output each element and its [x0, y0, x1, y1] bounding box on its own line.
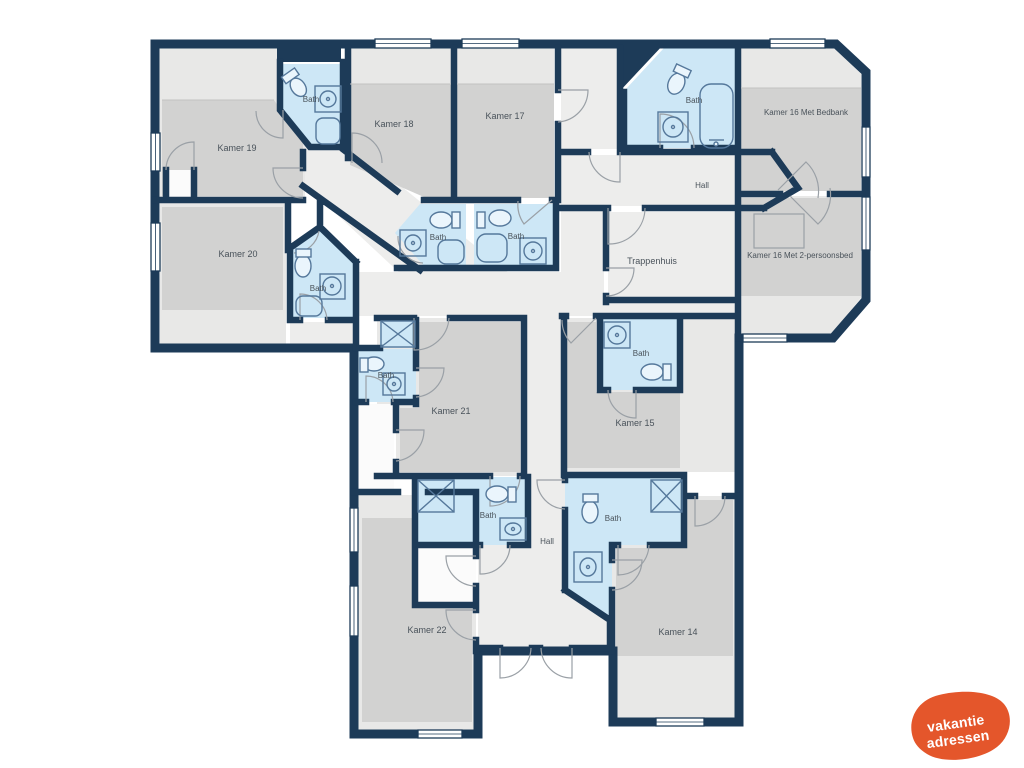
floorplan-svg: Kamer 19 Bath Kamer 18 Kamer 17 Bath Kam… — [0, 0, 1024, 768]
label-hall-lower: Hall — [540, 537, 554, 546]
window-icon — [656, 718, 704, 726]
label-kamer-15: Kamer 15 — [615, 418, 654, 428]
label-kamer-16-bedbank: Kamer 16 Met Bedbank — [764, 108, 849, 117]
window-icon — [743, 334, 787, 342]
toilet-icon — [641, 364, 671, 380]
hall-v1 — [561, 48, 619, 149]
room-kamer-17-area — [457, 84, 554, 198]
label-bath-lower-right: Bath — [605, 514, 621, 523]
toilet-icon — [295, 249, 311, 277]
toilet-icon — [360, 357, 384, 372]
label-trappenhuis: Trappenhuis — [627, 256, 677, 266]
window-icon — [151, 223, 160, 271]
label-kamer-21: Kamer 21 — [431, 406, 470, 416]
label-kamer-19: Kamer 19 — [217, 143, 256, 153]
room-kamer-16-2persoons-area — [741, 198, 861, 296]
label-kamer-17: Kamer 17 — [485, 111, 524, 121]
trappenhuis-floor — [608, 212, 736, 298]
window-icon — [418, 730, 462, 738]
toilet-icon — [582, 494, 598, 523]
label-kamer-20: Kamer 20 — [218, 249, 257, 259]
toilet-icon — [477, 210, 511, 228]
label-kamer-14: Kamer 14 — [658, 627, 697, 637]
toilet-icon — [486, 486, 516, 502]
room-kamer-16-bedbank-area — [741, 88, 861, 191]
label-kamer-22: Kamer 22 — [407, 625, 446, 635]
label-bath-lower-left: Bath — [480, 511, 496, 520]
vakantieadressen-logo: vakantie adressen — [911, 692, 1010, 760]
floorplan-page: Kamer 19 Bath Kamer 18 Kamer 17 Bath Kam… — [0, 0, 1024, 768]
label-bath-middle-left: Bath — [430, 233, 446, 242]
label-bath-19: Bath — [303, 95, 319, 104]
window-icon — [375, 39, 431, 48]
window-icon — [862, 127, 870, 177]
window-icon — [350, 508, 358, 552]
label-bath-15: Bath — [633, 349, 649, 358]
alcove-kamer-19 — [166, 170, 194, 197]
window-icon — [770, 39, 825, 48]
label-kamer-16-2persoons: Kamer 16 Met 2-persoonsbed — [747, 251, 853, 260]
toilet-icon — [430, 212, 460, 228]
label-hall-upper: Hall — [695, 181, 709, 190]
label-bath-top: Bath — [686, 96, 702, 105]
window-icon — [350, 586, 358, 636]
floors-layer — [159, 40, 861, 732]
label-bath-21: Bath — [378, 371, 394, 380]
label-kamer-18: Kamer 18 — [374, 119, 413, 129]
window-icon — [462, 39, 519, 48]
window-icon — [862, 197, 870, 250]
label-bath-20: Bath — [310, 284, 326, 293]
hall-below-bath-20 — [290, 322, 356, 346]
window-icon — [151, 133, 160, 171]
label-bath-middle-right: Bath — [508, 232, 524, 241]
